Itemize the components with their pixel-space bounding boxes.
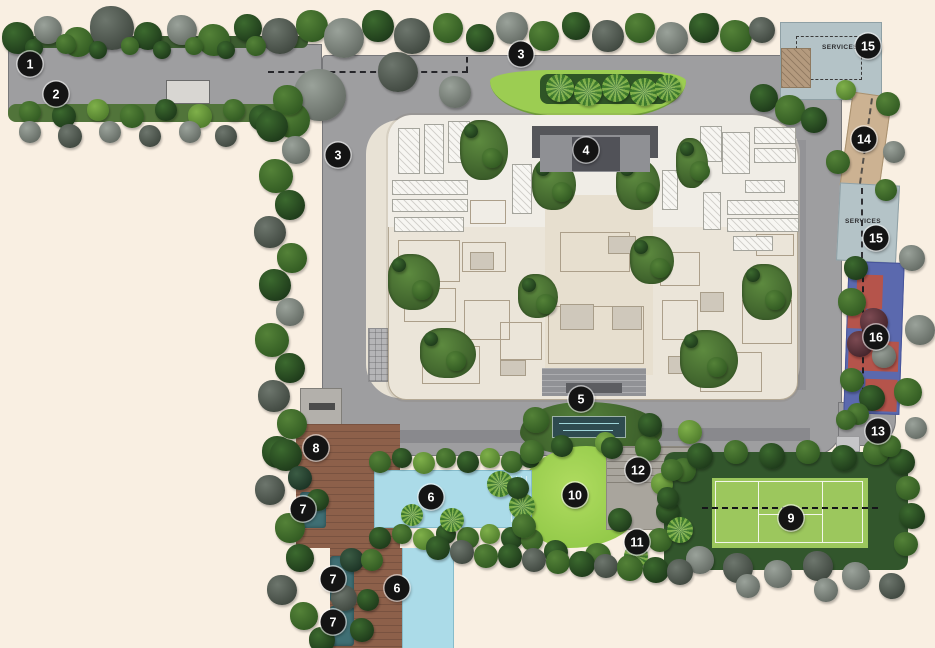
marker-7[interactable]: 7: [321, 610, 346, 635]
marker-13[interactable]: 13: [866, 419, 891, 444]
marker-10[interactable]: 10: [563, 483, 588, 508]
marker-3[interactable]: 3: [509, 42, 534, 67]
marker-3[interactable]: 3: [326, 143, 351, 168]
marker-4[interactable]: 4: [574, 138, 599, 163]
marker-12[interactable]: 12: [626, 458, 651, 483]
marker-11[interactable]: 11: [625, 530, 650, 555]
marker-7[interactable]: 7: [321, 567, 346, 592]
marker-9[interactable]: 9: [779, 506, 804, 531]
marker-14[interactable]: 14: [852, 127, 877, 152]
site-plan: SERVICES SERVICES: [0, 0, 935, 648]
marker-6[interactable]: 6: [385, 576, 410, 601]
marker-5[interactable]: 5: [569, 387, 594, 412]
marker-15[interactable]: 15: [856, 34, 881, 59]
marker-7[interactable]: 7: [291, 497, 316, 522]
marker-8[interactable]: 8: [304, 436, 329, 461]
marker-2[interactable]: 2: [44, 82, 69, 107]
marker-15[interactable]: 15: [864, 226, 889, 251]
marker-16[interactable]: 16: [864, 325, 889, 350]
marker-1[interactable]: 1: [18, 52, 43, 77]
marker-6[interactable]: 6: [419, 485, 444, 510]
